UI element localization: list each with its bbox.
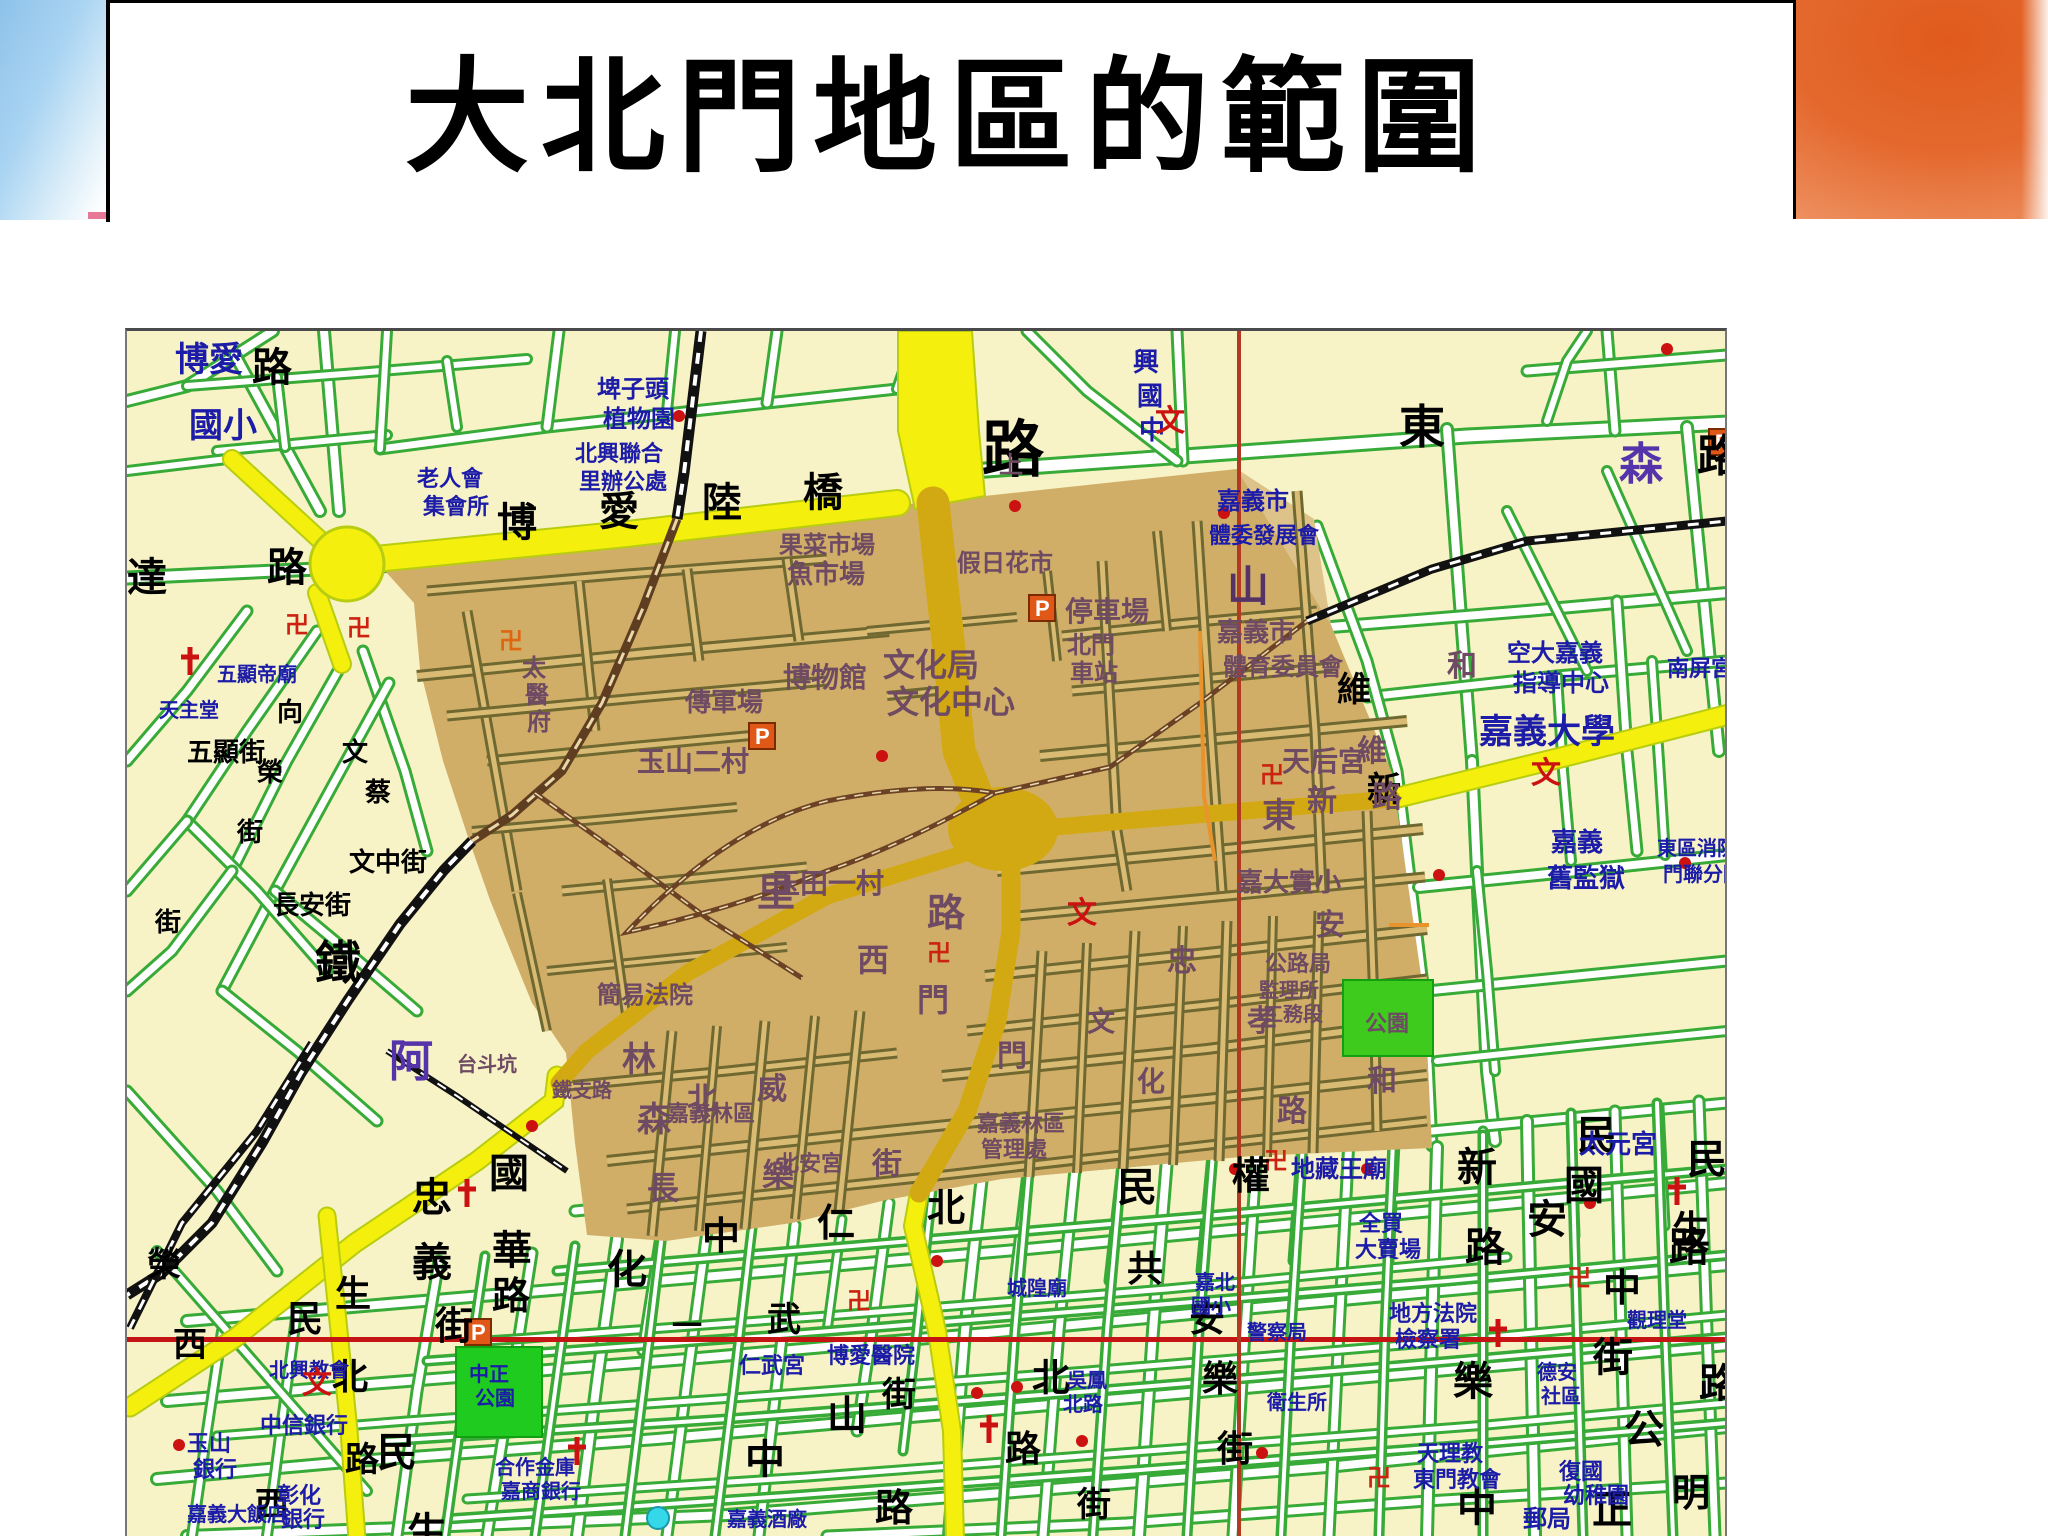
svg-text:和: 和 xyxy=(1447,650,1477,683)
svg-text:路: 路 xyxy=(492,1276,531,1318)
svg-text:忠: 忠 xyxy=(412,1176,452,1220)
svg-text:老人會: 老人會 xyxy=(416,466,484,491)
svg-text:中: 中 xyxy=(702,1216,740,1258)
svg-text:樂: 樂 xyxy=(1453,1360,1494,1404)
svg-text:街: 街 xyxy=(871,1148,902,1181)
svg-text:蔡: 蔡 xyxy=(365,777,391,807)
svg-text:公園: 公園 xyxy=(1365,1011,1409,1036)
svg-text:指導中心: 指導中心 xyxy=(1513,669,1609,697)
svg-text:街: 街 xyxy=(1592,1336,1633,1380)
svg-text:埤子頭: 埤子頭 xyxy=(597,375,670,403)
svg-text:長安街: 長安街 xyxy=(273,890,351,920)
svg-text:醫: 醫 xyxy=(525,682,549,709)
svg-text:卍: 卍 xyxy=(1260,762,1284,789)
svg-text:嘉北: 嘉北 xyxy=(1194,1270,1235,1294)
svg-text:街: 街 xyxy=(434,1306,473,1348)
svg-text:路: 路 xyxy=(1699,1362,1727,1406)
svg-text:山: 山 xyxy=(1227,563,1269,610)
svg-text:義: 義 xyxy=(412,1241,452,1285)
svg-text:民: 民 xyxy=(377,1431,417,1475)
svg-text:嘉義市: 嘉義市 xyxy=(1217,617,1295,647)
svg-text:管理處: 管理處 xyxy=(981,1137,1047,1162)
svg-text:檢察署: 檢察署 xyxy=(1395,1327,1461,1352)
svg-text:集會所: 集會所 xyxy=(422,494,489,519)
svg-text:德安: 德安 xyxy=(1537,1360,1577,1384)
svg-text:路: 路 xyxy=(1005,1428,1042,1469)
svg-text:太: 太 xyxy=(522,655,547,682)
svg-text:中: 中 xyxy=(1457,1486,1497,1530)
svg-text:長: 長 xyxy=(647,1170,680,1206)
svg-text:文: 文 xyxy=(302,1366,332,1400)
svg-text:玉山二村: 玉山二村 xyxy=(637,746,749,777)
svg-text:東區消防: 東區消防 xyxy=(1657,836,1727,860)
svg-text:化: 化 xyxy=(607,1248,647,1292)
svg-text:卍: 卍 xyxy=(847,1288,871,1315)
svg-text:向: 向 xyxy=(277,697,303,727)
svg-text:路: 路 xyxy=(927,893,966,935)
svg-text:華: 華 xyxy=(492,1229,532,1273)
svg-text:郵局: 郵局 xyxy=(1523,1506,1571,1533)
svg-text:安: 安 xyxy=(1315,909,1345,942)
svg-text:天主堂: 天主堂 xyxy=(159,698,219,722)
svg-text:維: 維 xyxy=(1357,735,1387,768)
svg-text:文: 文 xyxy=(1067,896,1097,930)
svg-text:空大嘉義: 空大嘉義 xyxy=(1507,639,1603,667)
svg-text:門聯分隊: 門聯分隊 xyxy=(1663,862,1727,886)
svg-text:新: 新 xyxy=(1457,1146,1497,1190)
svg-text:里: 里 xyxy=(757,873,795,915)
svg-text:里辦公處: 里辦公處 xyxy=(579,469,667,494)
svg-text:天后宮: 天后宮 xyxy=(1282,745,1366,777)
svg-text:共: 共 xyxy=(1127,1248,1163,1289)
svg-text:嘉義林區: 嘉義林區 xyxy=(977,1111,1065,1136)
svg-text:吳鳳: 吳鳳 xyxy=(1067,1370,1107,1392)
svg-text:假日花市: 假日花市 xyxy=(957,549,1053,577)
svg-text:舊監獄: 舊監獄 xyxy=(1547,863,1625,893)
svg-text:樂: 樂 xyxy=(762,1157,795,1193)
svg-text:孝: 孝 xyxy=(1247,1005,1277,1038)
svg-text:卍: 卍 xyxy=(499,628,523,655)
svg-text:民: 民 xyxy=(1117,1166,1157,1210)
svg-text:卍: 卍 xyxy=(347,615,371,642)
svg-text:仁: 仁 xyxy=(817,1203,855,1245)
svg-text:愛: 愛 xyxy=(599,490,639,534)
svg-text:國: 國 xyxy=(489,1152,529,1196)
svg-text:路: 路 xyxy=(1372,781,1403,814)
svg-text:武: 武 xyxy=(767,1301,801,1339)
svg-text:嘉義酒廠: 嘉義酒廠 xyxy=(726,1507,808,1531)
svg-text:路: 路 xyxy=(267,546,308,590)
svg-text:鐵: 鐵 xyxy=(315,937,361,989)
svg-text:生: 生 xyxy=(1672,1210,1710,1252)
svg-text:簡易法院: 簡易法院 xyxy=(597,981,693,1009)
svg-text:和: 和 xyxy=(1367,1065,1397,1098)
svg-text:橋: 橋 xyxy=(803,471,843,515)
svg-text:傳軍場: 傳軍場 xyxy=(684,687,763,717)
svg-text:北門: 北門 xyxy=(1067,632,1115,659)
svg-text:P: P xyxy=(755,724,770,749)
svg-text:文化局: 文化局 xyxy=(883,647,979,683)
svg-text:興: 興 xyxy=(1133,347,1159,377)
svg-text:達: 達 xyxy=(127,556,167,600)
svg-text:上: 上 xyxy=(999,452,1023,479)
svg-text:忠: 忠 xyxy=(1167,945,1197,978)
svg-text:民: 民 xyxy=(287,1298,323,1339)
svg-text:門: 門 xyxy=(997,1040,1027,1073)
svg-text:府: 府 xyxy=(527,708,551,736)
svg-text:陸: 陸 xyxy=(702,481,742,525)
svg-text:體委發展會: 體委發展會 xyxy=(1209,523,1320,548)
svg-text:合作金庫: 合作金庫 xyxy=(495,1455,575,1479)
svg-text:幼稚園: 幼稚園 xyxy=(1563,1483,1629,1508)
svg-text:東: 東 xyxy=(1262,797,1296,835)
svg-text:樂: 樂 xyxy=(1202,1358,1239,1399)
svg-text:街: 街 xyxy=(154,907,181,937)
svg-text:化: 化 xyxy=(1137,1066,1165,1097)
svg-text:地方法院: 地方法院 xyxy=(1389,1301,1477,1326)
svg-text:文: 文 xyxy=(342,737,369,767)
svg-text:觀理堂: 觀理堂 xyxy=(1627,1309,1687,1332)
svg-text:五顯街: 五顯街 xyxy=(187,737,265,767)
svg-text:車站: 車站 xyxy=(1070,660,1118,687)
svg-text:博物館: 博物館 xyxy=(783,661,867,693)
svg-text:警察局: 警察局 xyxy=(1247,1320,1307,1344)
svg-text:新: 新 xyxy=(1307,785,1337,818)
svg-text:大賣場: 大賣場 xyxy=(1355,1237,1421,1262)
svg-text:國小: 國小 xyxy=(189,407,257,445)
svg-text:鐵支路: 鐵支路 xyxy=(552,1078,613,1102)
svg-text:P: P xyxy=(1035,596,1050,621)
svg-text:文: 文 xyxy=(1155,404,1185,438)
svg-text:全買: 全買 xyxy=(1358,1211,1403,1236)
svg-text:威: 威 xyxy=(757,1073,787,1106)
svg-text:嘉義: 嘉義 xyxy=(1551,827,1603,857)
svg-text:北: 北 xyxy=(687,1083,717,1116)
svg-text:街: 街 xyxy=(1076,1486,1111,1524)
svg-text:生: 生 xyxy=(407,1511,447,1536)
svg-text:嘉大實小: 嘉大實小 xyxy=(1237,867,1341,897)
svg-text:體育委員會: 體育委員會 xyxy=(1223,653,1344,681)
svg-text:卍: 卍 xyxy=(1367,1465,1391,1492)
svg-text:文: 文 xyxy=(1087,1005,1115,1037)
svg-text:西: 西 xyxy=(857,942,889,978)
svg-text:生: 生 xyxy=(335,1273,371,1314)
svg-text:文化中心: 文化中心 xyxy=(887,684,1015,720)
svg-text:天理教: 天理教 xyxy=(1417,1441,1484,1466)
svg-text:監理所: 監理所 xyxy=(1259,978,1319,1002)
svg-text:衛生所: 衛生所 xyxy=(1266,1390,1327,1414)
svg-text:博愛: 博愛 xyxy=(175,341,243,379)
svg-text:中: 中 xyxy=(1603,1268,1641,1310)
svg-text:西: 西 xyxy=(173,1326,207,1364)
svg-text:安: 安 xyxy=(1527,1198,1567,1242)
svg-text:嘉義大飯店: 嘉義大飯店 xyxy=(186,1502,287,1526)
svg-text:嘉義市: 嘉義市 xyxy=(1217,487,1289,515)
svg-text:東: 東 xyxy=(1399,401,1445,453)
svg-text:P: P xyxy=(471,1320,486,1345)
svg-text:停車場: 停車場 xyxy=(1065,595,1149,627)
svg-text:博愛醫院: 博愛醫院 xyxy=(827,1343,915,1368)
svg-text:銀行: 銀行 xyxy=(193,1457,237,1482)
svg-text:果菜市場: 果菜市場 xyxy=(779,531,875,559)
svg-text:太元宮: 太元宮 xyxy=(1579,1129,1657,1159)
svg-text:山: 山 xyxy=(827,1394,867,1438)
svg-text:魚市場: 魚市場 xyxy=(787,559,865,589)
svg-text:南屏宮: 南屏宮 xyxy=(1667,656,1727,681)
svg-text:阿: 阿 xyxy=(389,1037,433,1086)
svg-text:街: 街 xyxy=(236,817,263,847)
svg-text:森: 森 xyxy=(637,1101,672,1139)
svg-text:北路: 北路 xyxy=(1063,1392,1104,1416)
svg-text:國小: 國小 xyxy=(1191,1295,1231,1318)
svg-text:北: 北 xyxy=(927,1188,965,1230)
svg-text:文中街: 文中街 xyxy=(349,847,427,877)
svg-text:仁武宮: 仁武宮 xyxy=(739,1353,805,1378)
svg-text:路: 路 xyxy=(1277,1095,1308,1128)
svg-text:復國: 復國 xyxy=(1558,1459,1603,1484)
svg-text:博: 博 xyxy=(497,501,537,545)
svg-text:玉山: 玉山 xyxy=(187,1431,231,1456)
svg-text:明: 明 xyxy=(1672,1473,1710,1515)
svg-text:地藏王廟: 地藏王廟 xyxy=(1291,1155,1387,1183)
svg-text:卍: 卍 xyxy=(285,612,309,639)
svg-text:榮: 榮 xyxy=(147,1246,181,1284)
svg-text:嘉義大學: 嘉義大學 xyxy=(1479,713,1615,751)
svg-text:權: 權 xyxy=(1232,1156,1270,1198)
svg-text:中: 中 xyxy=(745,1438,785,1482)
svg-text:路: 路 xyxy=(345,1441,380,1479)
svg-text:一: 一 xyxy=(672,1310,702,1343)
svg-text:文: 文 xyxy=(1531,756,1561,790)
svg-text:植物園: 植物園 xyxy=(603,405,675,433)
svg-text:城隍廟: 城隍廟 xyxy=(1007,1276,1067,1300)
svg-text:路: 路 xyxy=(1465,1226,1506,1270)
svg-text:嘉商銀行: 嘉商銀行 xyxy=(500,1479,581,1503)
svg-text:卍: 卍 xyxy=(927,940,951,967)
svg-text:公園: 公園 xyxy=(475,1387,515,1410)
svg-text:北興聯合: 北興聯合 xyxy=(575,441,664,466)
svg-text:中正: 中正 xyxy=(469,1362,509,1386)
svg-text:國: 國 xyxy=(1564,1164,1604,1208)
svg-text:社區: 社區 xyxy=(1540,1384,1581,1408)
svg-text:路: 路 xyxy=(875,1488,914,1530)
svg-text:銀行: 銀行 xyxy=(281,1507,325,1532)
svg-text:森: 森 xyxy=(1619,440,1664,489)
svg-text:街: 街 xyxy=(881,1376,916,1414)
svg-text:街: 街 xyxy=(1216,1428,1253,1469)
svg-text:路: 路 xyxy=(1697,432,1727,481)
svg-text:中信銀行: 中信銀行 xyxy=(260,1413,348,1438)
svg-text:五顯帝廟: 五顯帝廟 xyxy=(217,662,297,686)
svg-text:東門教會: 東門教會 xyxy=(1413,1467,1502,1492)
svg-text:林: 林 xyxy=(622,1041,656,1079)
svg-text:卍: 卍 xyxy=(1567,1265,1591,1292)
svg-text:公路局: 公路局 xyxy=(1265,951,1331,976)
svg-text:公: 公 xyxy=(1624,1408,1664,1452)
svg-text:民: 民 xyxy=(1687,1138,1727,1182)
svg-text:路: 路 xyxy=(252,346,293,390)
svg-text:門: 門 xyxy=(917,982,949,1018)
svg-text:台斗坑: 台斗坑 xyxy=(457,1052,517,1076)
